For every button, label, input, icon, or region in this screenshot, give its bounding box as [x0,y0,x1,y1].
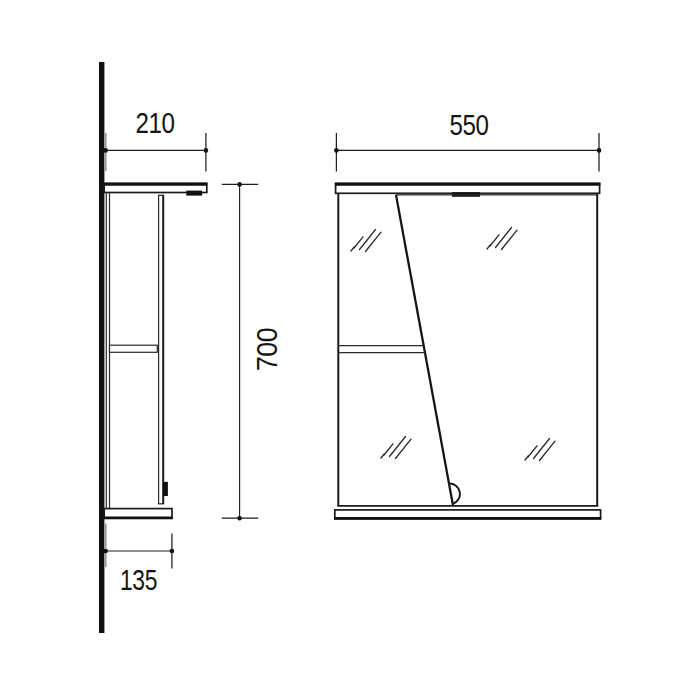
dimension-dot [170,549,175,554]
dimension-dot [597,148,602,153]
dimension-label-210: 210 [136,107,175,139]
dimension-dot [237,182,242,187]
dimension-label-700: 700 [251,328,283,371]
side-shelf [110,345,158,352]
dimension-dot [103,549,108,554]
background [0,0,700,700]
technical-drawing: 210 700 135 550 [0,0,700,700]
dimension-label-135: 135 [120,564,157,596]
dimension-dot [237,516,242,521]
wall-line [99,62,104,633]
drawing-canvas: 210 700 135 550 [0,0,700,700]
side-light-fixture [186,191,202,196]
side-door-handle [163,482,168,496]
dimension-dot [334,148,339,153]
dimension-dot [103,148,108,153]
dimension-dot [204,148,209,153]
dimension-label-550: 550 [450,109,489,141]
